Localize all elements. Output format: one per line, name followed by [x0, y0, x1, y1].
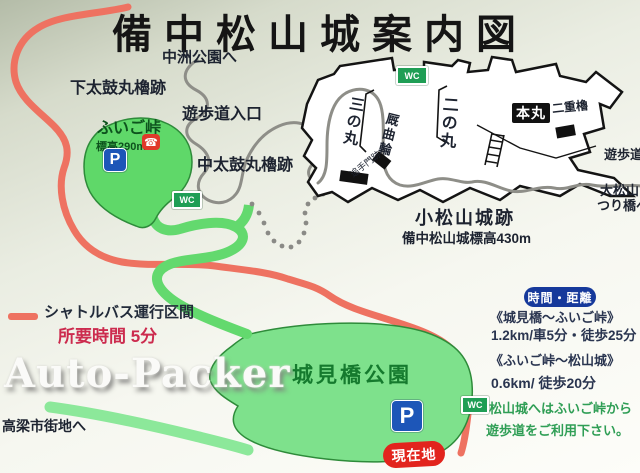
label-takahashi-city: 高梁市街地へ — [2, 419, 86, 434]
infobox-badge: 時間・距離 — [524, 287, 596, 307]
label-shimo-taiko: 下太鼓丸櫓跡 — [70, 80, 166, 98]
infobox-row2-title: 《ふいご峠～松山城》 — [490, 354, 620, 368]
phone-icon: ☎ — [142, 134, 160, 150]
map-title: 備中松山城案内図 — [0, 2, 640, 60]
infobox-row1-value: 1.2km/車5分・徒歩25分 — [491, 329, 637, 344]
shuttle-route-swatch — [8, 313, 38, 320]
infobox-row2-value: 0.6km/ 徒歩20分 — [491, 376, 596, 391]
toilet-icon-fuigo: WC — [172, 191, 202, 209]
infobox-note2: 遊歩道をご利用下さい。 — [486, 424, 629, 438]
infobox-row1-title: 《城見橋～ふいご峠》 — [490, 311, 620, 325]
legend-time-label: 所要時間 5分 — [58, 328, 157, 347]
label-nakasu-park: 中洲公園へ — [162, 50, 237, 67]
label-omatsuyama: 大松山 — [600, 184, 639, 198]
parking-icon-park: P — [391, 400, 423, 432]
label-honmaru: 本丸 — [512, 103, 550, 123]
label-naka-taiko: 中太鼓丸櫓跡 — [197, 157, 293, 175]
current-location-badge: 現在地 — [382, 440, 445, 468]
fuigo-road-spur — [236, 205, 249, 227]
dotted-footpath — [250, 192, 326, 250]
castle-guide-map: 備中松山城案内図 中洲公園へ 下太鼓丸櫓跡 遊歩道入口 中太鼓丸櫓跡 ふいご峠 … — [0, 0, 640, 473]
legend-shuttle-label: シャトルバス運行区間 — [44, 305, 194, 322]
label-komatsuyama: 小松山城跡 — [415, 209, 515, 229]
label-komatsuyama-elevation: 備中松山城標高430m — [402, 232, 531, 247]
infobox-note1: 松山城へはふいご峠から — [489, 402, 632, 416]
toilet-icon-castle: WC — [396, 66, 428, 85]
promenade-trail-upper — [185, 60, 318, 203]
label-tsuribashi: つり橋へ — [597, 199, 640, 213]
toilet-icon-park: WC — [461, 396, 489, 414]
label-promenade-entrance: 遊歩道入口 — [182, 106, 262, 124]
label-shiromibashi-park: 城見橋公園 — [292, 364, 412, 387]
parking-icon-fuigo: P — [103, 148, 127, 172]
label-ninomaru: 二の丸 — [436, 95, 457, 150]
watermark: Auto-Packer — [4, 350, 290, 397]
label-promenade-right: 遊歩道 — [604, 148, 640, 162]
